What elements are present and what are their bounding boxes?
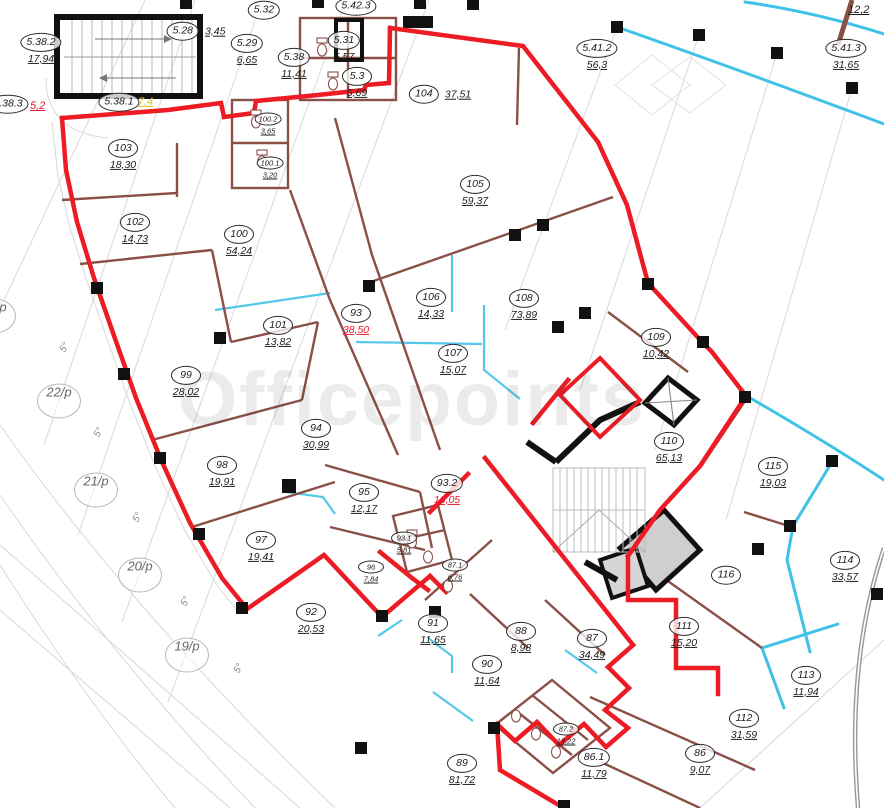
columns bbox=[91, 0, 883, 808]
facade-wall-gray bbox=[855, 548, 884, 808]
grid-axis-19p: 19/p bbox=[165, 638, 209, 673]
center-stair-icon bbox=[553, 468, 645, 552]
annotation-5-2: 5,2 bbox=[30, 100, 45, 112]
grid-axis-22p: 22/p bbox=[37, 384, 81, 419]
staircase-icon bbox=[57, 17, 200, 96]
grid-axis-20p: 20/p bbox=[118, 558, 162, 593]
annotation-12-2: 12,2 bbox=[848, 4, 869, 16]
grid-axis-21p: 21/p bbox=[74, 473, 118, 508]
partition-walls bbox=[62, 0, 852, 808]
floor-plan: Officepoints 23/p 22/p 21/p 20/p 19/p 5°… bbox=[0, 0, 884, 808]
toilet-fixtures bbox=[251, 38, 561, 758]
grid-lines bbox=[0, 0, 884, 808]
floor-plan-linework bbox=[0, 0, 884, 808]
red-boundary bbox=[62, 28, 746, 807]
annotation-7-4: 7,4 bbox=[138, 96, 153, 108]
